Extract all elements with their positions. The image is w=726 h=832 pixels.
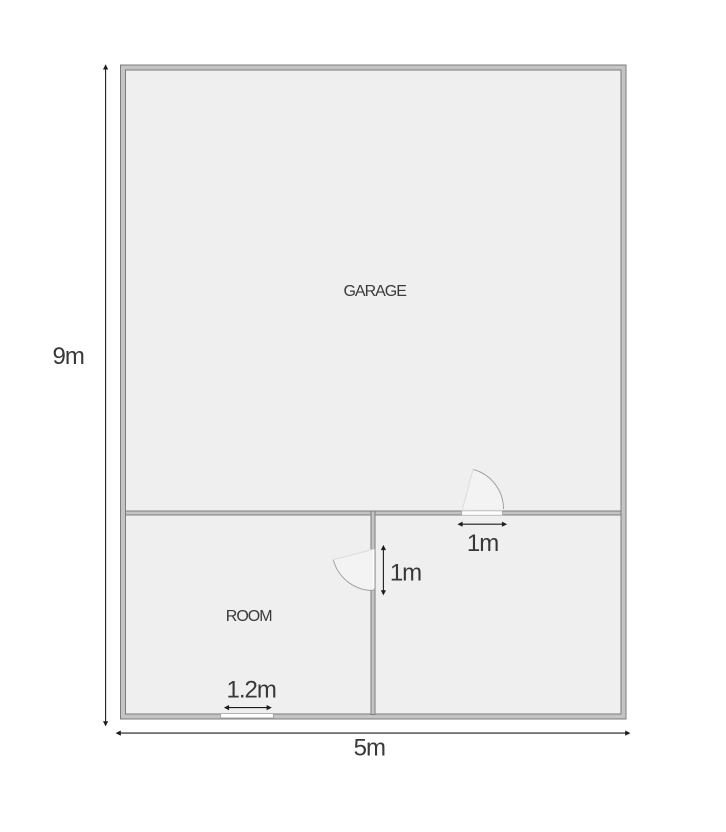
svg-text:1m: 1m [467, 530, 498, 557]
svg-text:5m: 5m [354, 735, 385, 762]
svg-text:1.2m: 1.2m [227, 677, 276, 704]
svg-text:1m: 1m [390, 560, 421, 587]
svg-text:9m: 9m [53, 343, 84, 370]
svg-text:GARAGE: GARAGE [343, 283, 406, 300]
svg-text:ROOM: ROOM [226, 608, 272, 625]
